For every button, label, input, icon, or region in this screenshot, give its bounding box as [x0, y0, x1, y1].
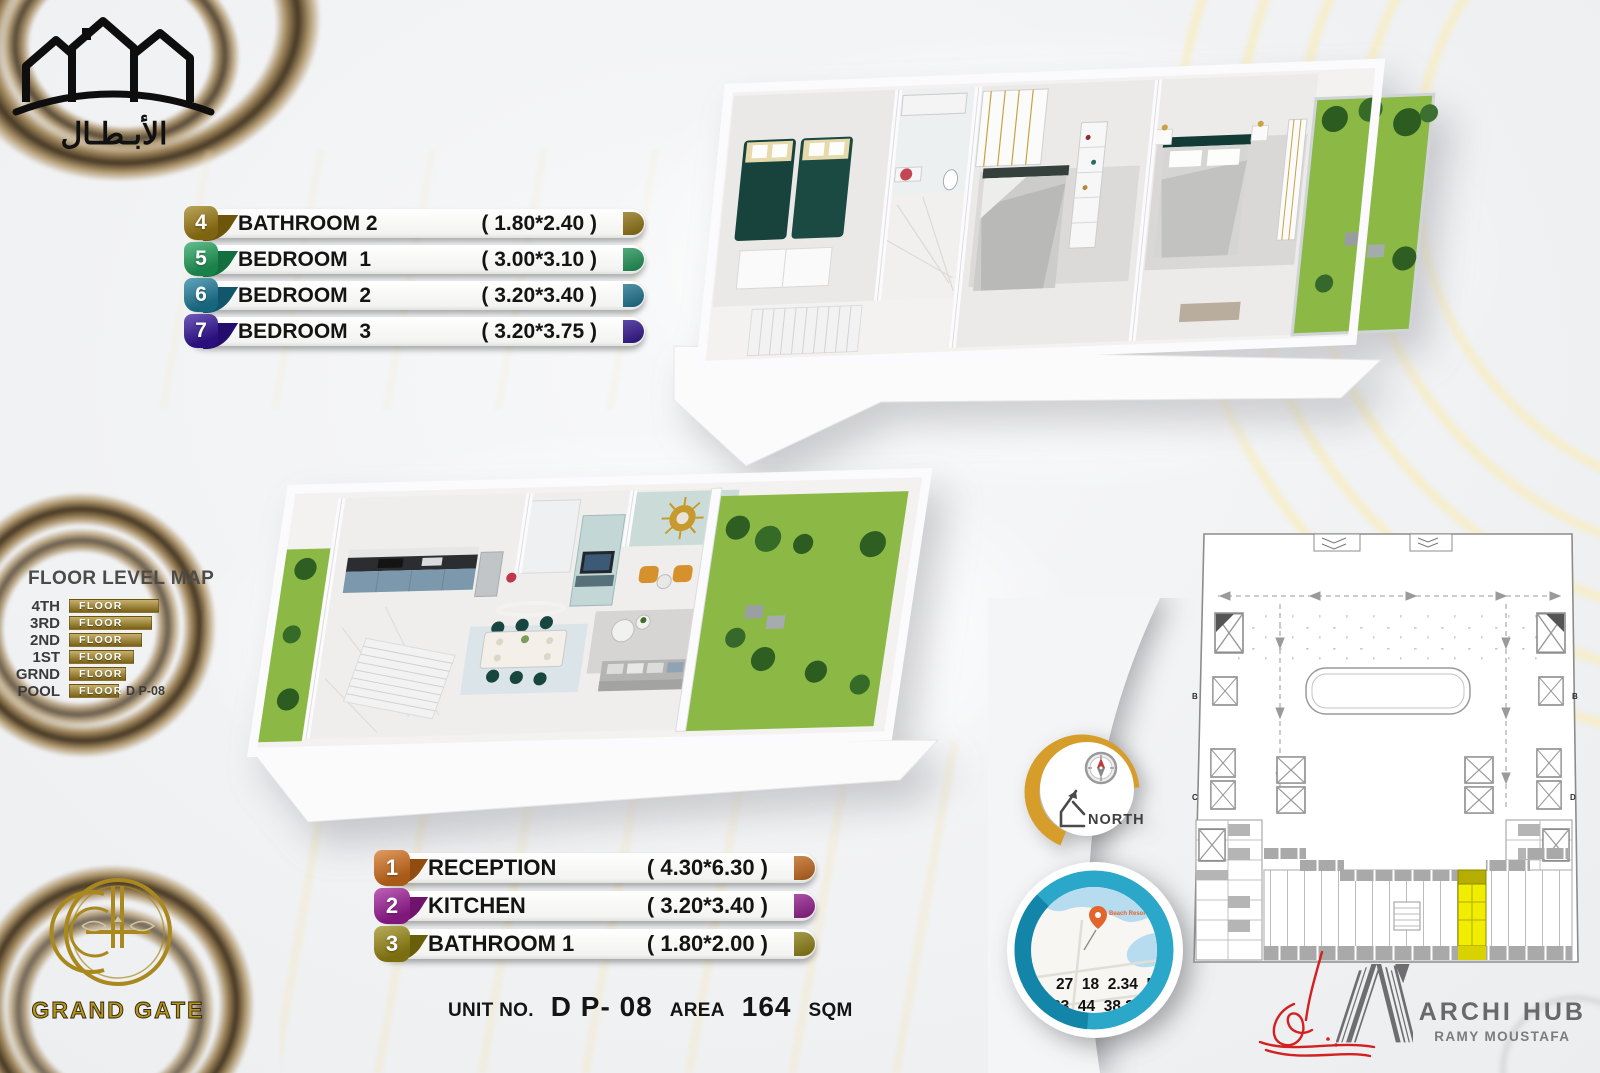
row-end-cap [794, 894, 815, 918]
floor-bar: FLOOR [69, 667, 126, 681]
room-dimensions: ( 3.00*3.10 ) [481, 245, 597, 274]
floor-map-title: FLOOR LEVEL MAP [28, 568, 229, 590]
room-row-bathroom-1: 3 BATHROOM 1 ( 1.80*2.00 ) [380, 929, 816, 959]
floor-row-1st: 1ST FLOOR [14, 650, 229, 664]
room-dimensions: ( 3.20*3.40 ) [647, 891, 768, 921]
grand-gate-logo: GRAND GATE [22, 868, 214, 1030]
archi-hub-text: ARCHI HUB RAMY MOUSTAFA [1419, 998, 1586, 1060]
room-name: BEDROOM 2 [238, 281, 371, 310]
grid-marker-b-right: B [1572, 692, 1578, 701]
pin-label: Beach Resort [1109, 911, 1148, 917]
arabic-brand-name: الأبـطـال [61, 115, 168, 151]
unit-no-value: D P- 08 [551, 991, 653, 1023]
highlighted-unit [1458, 870, 1486, 960]
room-row-kitchen: 2 KITCHEN ( 3.20*3.40 ) [380, 891, 816, 921]
upper-room-list: 4 BATHROOM 2 ( 1.80*2.40 ) 5 BEDROOM 1 (… [190, 209, 645, 353]
floor-level-map: FLOOR LEVEL MAP 4TH FLOOR 3RD FLOOR 2ND … [14, 568, 229, 701]
bedroom-1 [952, 80, 1158, 348]
room-number-badge: 5 [184, 242, 218, 276]
grid-marker-d-right: D [1570, 793, 1576, 802]
grid-marker-b-left: B [1192, 692, 1198, 701]
brochure-canvas: الأبـطـال [0, 0, 1600, 1073]
room-row-bedroom-1: 5 BEDROOM 1 ( 3.00*3.10 ) [190, 245, 645, 274]
area-unit: SQM [809, 1000, 853, 1022]
floor-row-3rd: 3RD FLOOR [14, 616, 229, 630]
floor-level-label: POOL [14, 683, 60, 700]
archi-hub-logo: ARCHI HUB RAMY MOUSTAFA [1336, 952, 1586, 1060]
compass-widget: NORTH [1020, 728, 1152, 860]
room-dimensions: ( 4.30*6.30 ) [647, 853, 768, 883]
room-name: RECEPTION [428, 853, 556, 883]
central-courtyard [1306, 668, 1470, 714]
unit-no-label: UNIT NO. [448, 1000, 534, 1022]
room-number-badge: 1 [374, 850, 410, 886]
area-value: 164 [742, 991, 792, 1023]
floor-note: D P-08 [126, 684, 165, 698]
floor-level-label: 1ST [14, 649, 60, 666]
room-name: KITCHEN [428, 891, 526, 921]
floor-level-label: 3RD [14, 615, 60, 632]
room-name: BEDROOM 3 [238, 317, 371, 346]
row-end-cap [623, 212, 644, 235]
row-end-cap [794, 856, 815, 880]
row-end-cap [623, 248, 644, 271]
floor-bar: FLOOR [69, 616, 152, 630]
grid-marker-c-left: C [1192, 793, 1198, 802]
location-map-widget: Beach Resort 27 18 2.34 N 33 44 38.36 E [1000, 858, 1192, 1050]
staircase [747, 305, 862, 355]
room-row-bathroom-2: 4 BATHROOM 2 ( 1.80*2.40 ) [190, 209, 645, 238]
floor-level-label: 2ND [14, 632, 60, 649]
room-name: BATHROOM 2 [238, 209, 378, 238]
north-label: NORTH [1088, 812, 1145, 828]
studio-name: ARCHI HUB [1419, 998, 1586, 1027]
bedroom-twin-beds [713, 90, 899, 307]
room-dimensions: ( 3.20*3.75 ) [481, 317, 597, 346]
room-dimensions: ( 1.80*2.00 ) [647, 929, 768, 959]
floor-row-2nd: 2ND FLOOR [14, 633, 229, 647]
lower-plan-rooms [252, 473, 927, 753]
floor-level-label: GRND [14, 666, 60, 683]
parking-grid [1223, 608, 1553, 663]
row-end-cap [794, 932, 815, 956]
lower-floor-plan-render [238, 446, 1022, 830]
room-row-bedroom-2: 6 BEDROOM 2 ( 3.20*3.40 ) [190, 281, 645, 310]
room-row-bedroom-3: 7 BEDROOM 3 ( 3.20*3.75 ) [190, 317, 645, 346]
terrace-garden-right [676, 483, 910, 731]
room-row-reception: 1 RECEPTION ( 4.30*6.30 ) [380, 853, 816, 883]
room-name: BEDROOM 1 [238, 245, 371, 274]
row-end-cap [623, 320, 644, 343]
room-number-badge: 2 [374, 888, 410, 924]
room-number-badge: 3 [374, 926, 410, 962]
unit-info-line: UNIT NO. D P- 08 AREA 164 SQM [448, 991, 853, 1023]
grand-gate-wordmark: GRAND GATE [32, 997, 205, 1023]
floor-bar: FLOOR [69, 633, 142, 647]
floor-bar: FLOOR [69, 650, 134, 664]
compass-rose-icon [1086, 753, 1116, 783]
chimney-icon [82, 28, 91, 40]
room-number-badge: 4 [184, 206, 218, 240]
floor-row-4th: 4TH FLOOR [14, 599, 229, 613]
floor-bar: FLOOR [69, 684, 119, 698]
upper-floor-plan-render [646, 48, 1450, 472]
bathroom-2 [888, 87, 979, 196]
al-abtal-logo: الأبـطـال [8, 4, 220, 156]
corridor-marble [877, 192, 968, 301]
room-name: BATHROOM 1 [428, 929, 574, 959]
room-number-badge: 6 [184, 278, 218, 312]
studio-subtitle: RAMY MOUSTAFA [1419, 1029, 1586, 1044]
floor-row-pool: POOL FLOOR D P-08 [14, 684, 229, 698]
bedroom-2 [1132, 74, 1318, 341]
row-end-cap [623, 284, 644, 307]
site-plan: B B C D [1168, 518, 1600, 968]
area-label: AREA [670, 1000, 725, 1022]
room-dimensions: ( 3.20*3.40 ) [481, 281, 597, 310]
floor-level-label: 4TH [14, 598, 60, 615]
archi-hub-icon [1336, 952, 1413, 1056]
room-dimensions: ( 1.80*2.40 ) [481, 209, 597, 238]
lower-room-list: 1 RECEPTION ( 4.30*6.30 ) 2 KITCHEN ( 3.… [380, 853, 816, 967]
upper-plan-rooms [701, 61, 1444, 366]
floor-bar: FLOOR [69, 599, 159, 613]
room-number-badge: 7 [184, 314, 218, 348]
floor-row-grnd: GRND FLOOR [14, 667, 229, 681]
